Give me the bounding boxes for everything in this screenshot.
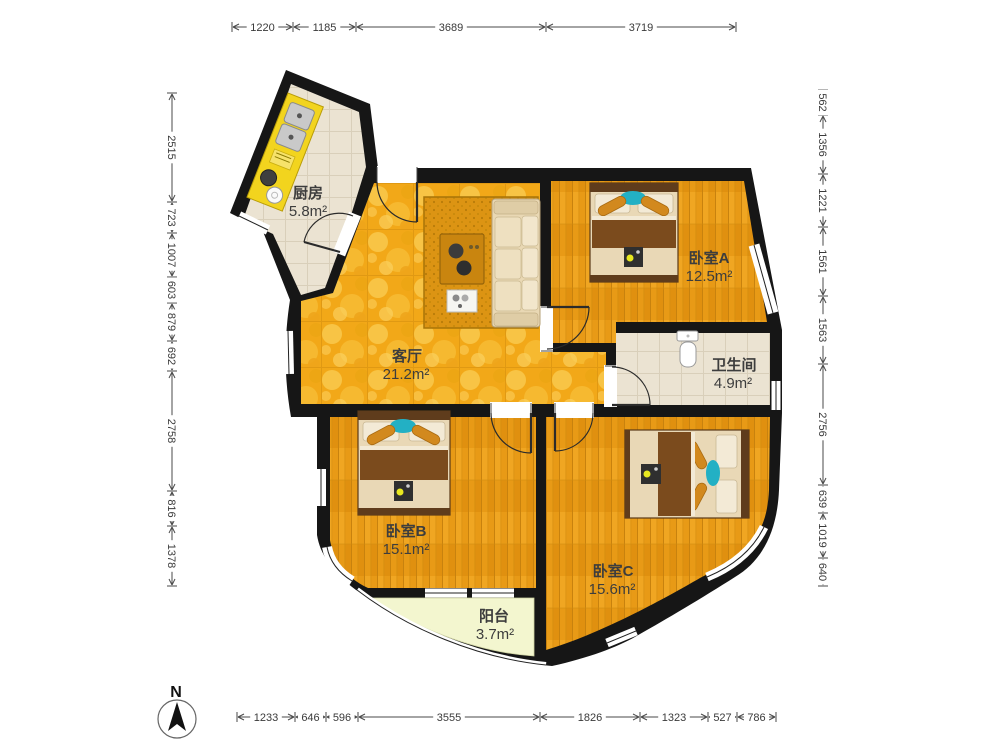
dimension-line-bottom: 1233646596355518261323527786: [237, 711, 776, 724]
floor-plan-canvas: 厨房 5.8m² 客厅 21.2m² 卧室A 12.5m² 卫生间 4.9m² …: [0, 0, 1000, 750]
north-arrow-icon: [168, 702, 186, 731]
bedroom-b-area: 15.1m²: [383, 541, 430, 558]
dim-value-bottom-6: 527: [713, 712, 731, 724]
living-room-window: [288, 331, 289, 374]
kitchen-label: 厨房: [293, 184, 323, 202]
bedroom-c-bed: [625, 430, 749, 518]
dim-value-right-5: 2756: [816, 412, 828, 436]
coffee-table: [440, 234, 484, 312]
dimension-line-right: 562135612211561156327566391019640: [816, 90, 829, 586]
dimension-line-top: 1220118536893719: [232, 21, 736, 34]
bedroom-c-label: 卧室C: [593, 562, 634, 580]
dim-value-left-4: 879: [165, 313, 177, 331]
dim-value-left-8: 1378: [165, 544, 177, 568]
bedroom-a-bed: [590, 183, 678, 282]
teal-pillow: [706, 460, 720, 486]
dim-value-top-3: 3719: [629, 22, 653, 34]
bathroom-label: 卫生间: [711, 356, 756, 374]
dim-value-bottom-3: 3555: [437, 712, 461, 724]
bedroom-a-label: 卧室A: [689, 249, 730, 267]
dim-value-bottom-1: 646: [301, 712, 319, 724]
dim-value-left-0: 2515: [165, 135, 177, 159]
dim-value-top-1: 1185: [313, 22, 337, 34]
dim-value-left-7: 816: [165, 499, 177, 517]
dim-value-top-2: 3689: [439, 22, 463, 34]
toilet-icon: [677, 331, 698, 367]
dim-value-left-6: 2758: [165, 419, 177, 443]
dim-value-right-8: 640: [816, 563, 828, 581]
dim-value-right-1: 1356: [816, 132, 828, 156]
dim-value-left-2: 1007: [165, 243, 177, 267]
sofa: [492, 199, 540, 327]
bedroom-c-area: 15.6m²: [589, 581, 636, 598]
dim-value-left-3: 603: [165, 281, 177, 299]
floor-plan-page: 厨房 5.8m² 客厅 21.2m² 卧室A 12.5m² 卫生间 4.9m² …: [0, 0, 1000, 750]
dim-value-bottom-7: 786: [747, 712, 765, 724]
bedroom-b-label: 卧室B: [386, 522, 427, 540]
dim-value-bottom-4: 1826: [578, 712, 602, 724]
dim-value-left-5: 692: [165, 347, 177, 365]
dim-value-bottom-5: 1323: [662, 712, 686, 724]
dim-value-right-6: 639: [816, 490, 828, 508]
living-area: 21.2m²: [383, 366, 430, 383]
dim-value-bottom-0: 1233: [254, 712, 278, 724]
dim-value-top-0: 1220: [250, 22, 274, 34]
bedroom-b-bed: [358, 411, 450, 515]
compass-north-label: N: [170, 684, 182, 701]
compass: N: [158, 684, 196, 738]
balcony-label: 阳台: [479, 607, 509, 625]
dim-value-right-4: 1563: [816, 318, 828, 342]
dim-value-right-7: 1019: [816, 523, 828, 547]
living-label: 客厅: [391, 347, 422, 365]
bathroom-area: 4.9m²: [714, 375, 752, 392]
bedroom-a-area: 12.5m²: [686, 268, 733, 285]
balcony-area: 3.7m²: [476, 626, 514, 643]
kitchen-area: 5.8m²: [289, 203, 327, 220]
dim-value-right-3: 1561: [816, 249, 828, 273]
dim-value-right-2: 1221: [816, 188, 828, 212]
dimension-line-left: 2515723100760387969227588161378: [165, 93, 178, 586]
dim-value-left-1: 723: [165, 208, 177, 226]
dim-value-right-0: 562: [816, 93, 828, 111]
dim-value-bottom-2: 596: [333, 712, 351, 724]
